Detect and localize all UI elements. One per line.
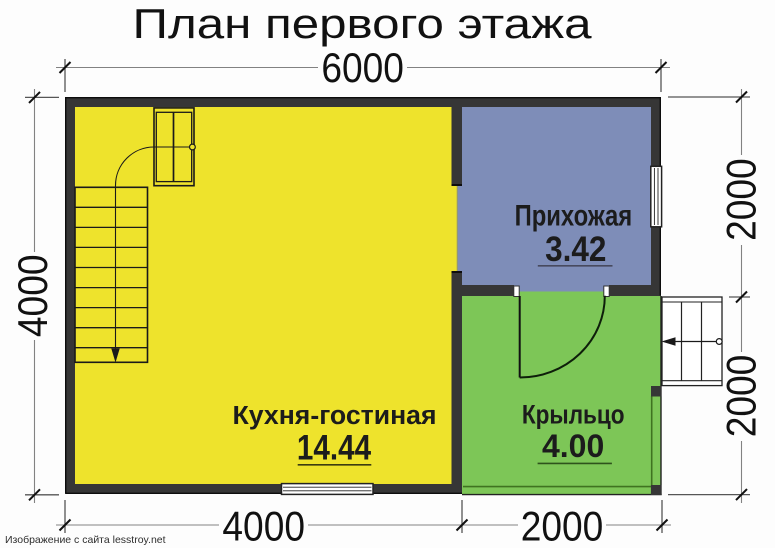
svg-text:2000: 2000 xyxy=(718,158,765,241)
svg-text:4.00: 4.00 xyxy=(542,428,604,464)
svg-text:Крыльцо: Крыльцо xyxy=(522,400,625,430)
svg-text:Изображение с сайта lesstroy.n: Изображение с сайта lesstroy.net xyxy=(5,534,166,546)
svg-text:14.44: 14.44 xyxy=(297,427,371,467)
svg-text:План первого этажа: План первого этажа xyxy=(133,0,593,47)
svg-text:6000: 6000 xyxy=(321,45,404,92)
svg-text:4000: 4000 xyxy=(222,503,305,548)
svg-text:2000: 2000 xyxy=(521,503,604,548)
svg-text:Кухня-гостиная: Кухня-гостиная xyxy=(232,400,436,430)
svg-text:2000: 2000 xyxy=(718,355,765,438)
svg-text:Прихожая: Прихожая xyxy=(515,198,633,232)
svg-text:3.42: 3.42 xyxy=(545,231,606,270)
svg-text:4000: 4000 xyxy=(10,255,57,338)
